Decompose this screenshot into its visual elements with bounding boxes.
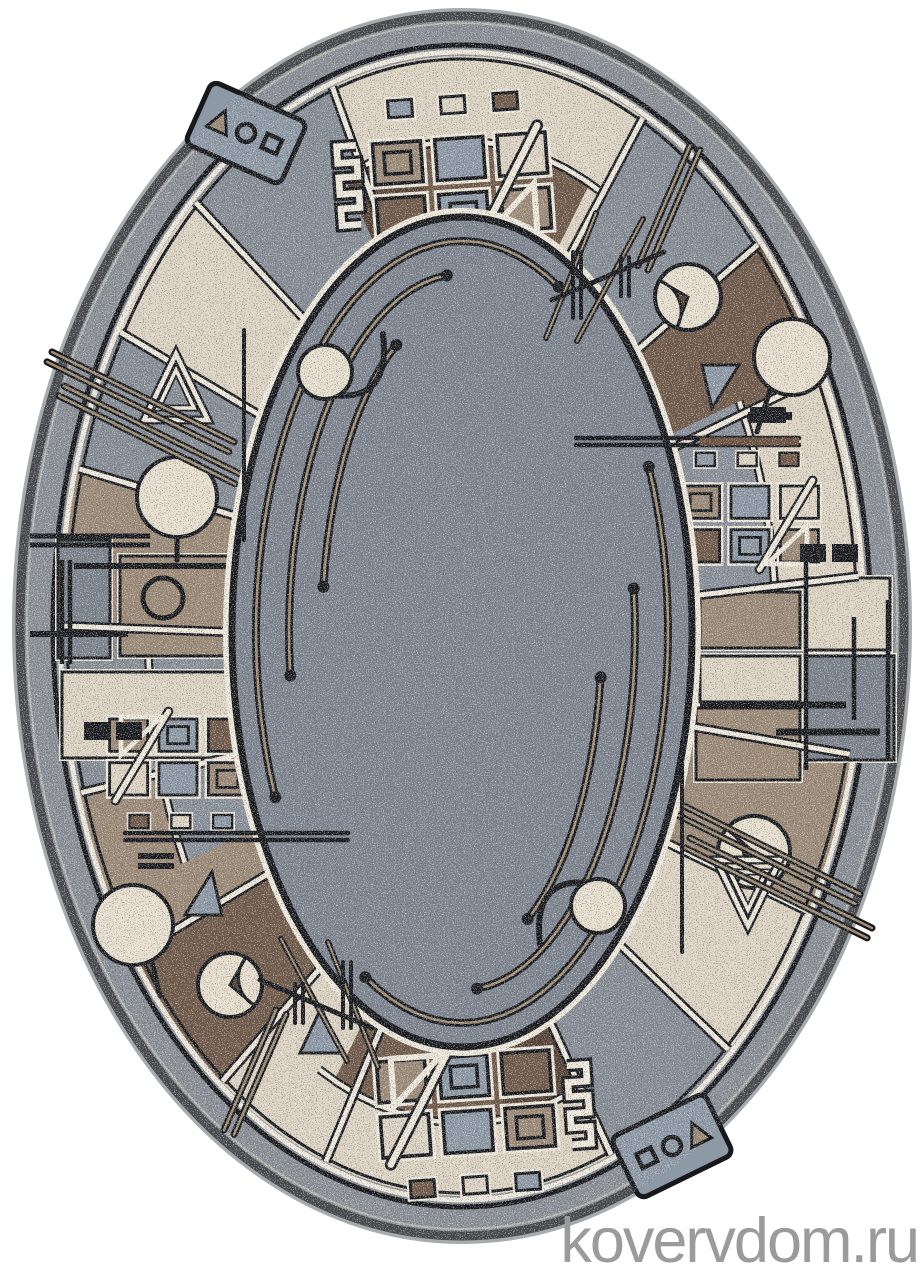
- product-photo: kovervdom.ru: [0, 0, 924, 1280]
- rug-photo: kovervdom.ru: [0, 0, 924, 1280]
- pile-texture: [0, 0, 924, 1280]
- watermark-text: kovervdom.ru: [560, 1206, 918, 1276]
